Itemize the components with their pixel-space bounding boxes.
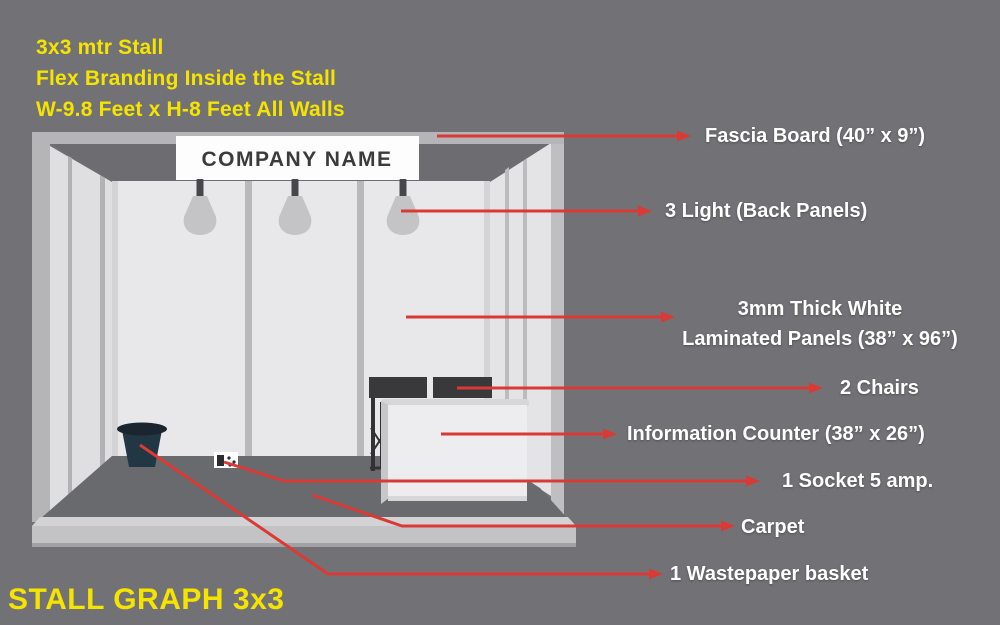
label-laminated-panels-line-1: 3mm Thick White [655,294,985,324]
label-lights: 3 Light (Back Panels) [665,197,867,225]
left-frame-bar [32,132,50,522]
arrowhead-icon [649,569,663,580]
page-title: STALL GRAPH 3x3 [8,583,284,617]
label-chairs: 2 Chairs [840,374,919,402]
arrowhead-icon [638,206,652,217]
platform-base [32,517,576,547]
fascia-board: COMPANY NAME [176,136,419,180]
label-fascia-board: Fascia Board (40” x 9”) [705,122,925,150]
label-wastepaper-basket: 1 Wastepaper basket [670,560,868,588]
left-wall [50,146,112,512]
chair-backrest [369,377,427,398]
arrowhead-icon [603,429,617,440]
arrowhead-icon [746,476,760,487]
arrowhead-icon [721,521,735,532]
arrowhead-icon [809,383,823,394]
information-counter [381,399,529,504]
label-carpet: Carpet [741,513,804,541]
stall-graph-canvas: 3x3 mtr Stall Flex Branding Inside the S… [0,0,1000,625]
label-laminated-panels-line-2: Laminated Panels (38” x 96”) [655,324,985,354]
fascia-company-name: COMPANY NAME [201,148,392,171]
label-laminated-panels: 3mm Thick White Laminated Panels (38” x … [655,294,985,354]
label-information-counter: Information Counter (38” x 26”) [627,420,925,448]
label-socket: 1 Socket 5 amp. [782,467,933,495]
arrowhead-icon [677,131,691,142]
